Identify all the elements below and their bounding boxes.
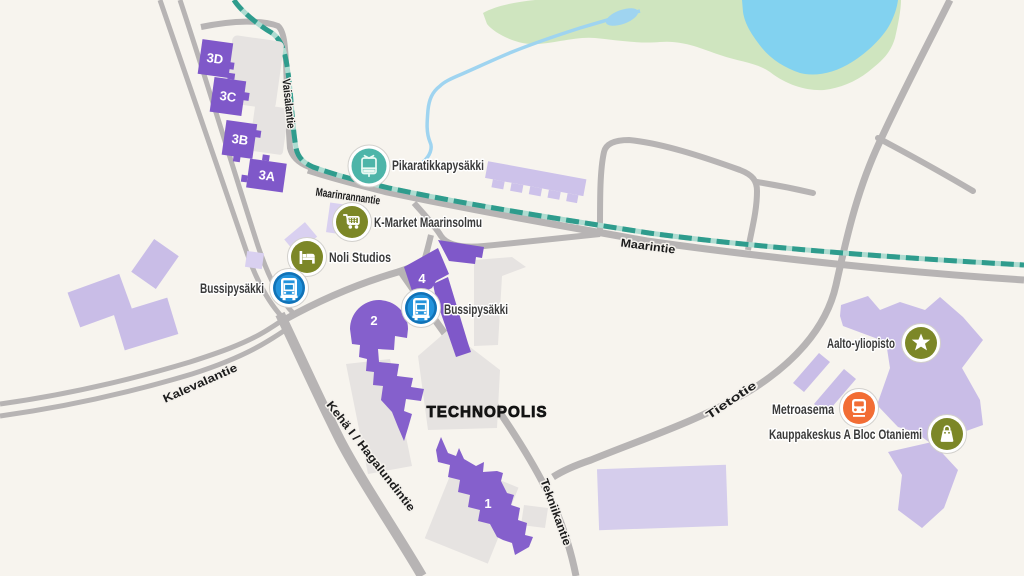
svg-text:Bussipysäkki: Bussipysäkki	[444, 302, 508, 317]
svg-text:K-Market Maarinsolmu: K-Market Maarinsolmu	[374, 215, 482, 230]
svg-text:3D: 3D	[206, 50, 225, 67]
svg-text:TECHNOPOLIS: TECHNOPOLIS	[427, 404, 548, 421]
svg-text:Noli Studios: Noli Studios	[329, 250, 391, 265]
svg-text:Kauppakeskus A Bloc Otaniemi: Kauppakeskus A Bloc Otaniemi	[769, 427, 922, 442]
svg-text:Metroasema: Metroasema	[772, 402, 834, 417]
svg-text:3C: 3C	[219, 88, 238, 105]
svg-text:3B: 3B	[231, 131, 250, 148]
svg-text:3A: 3A	[258, 167, 277, 184]
svg-text:Pikaratikkapysäkki: Pikaratikkapysäkki	[392, 158, 484, 173]
svg-text:1: 1	[484, 496, 491, 511]
svg-text:Bussipysäkki: Bussipysäkki	[200, 281, 264, 296]
svg-text:Aalto-yliopisto: Aalto-yliopisto	[827, 336, 895, 351]
svg-text:2: 2	[370, 313, 377, 328]
svg-text:4: 4	[418, 271, 426, 286]
